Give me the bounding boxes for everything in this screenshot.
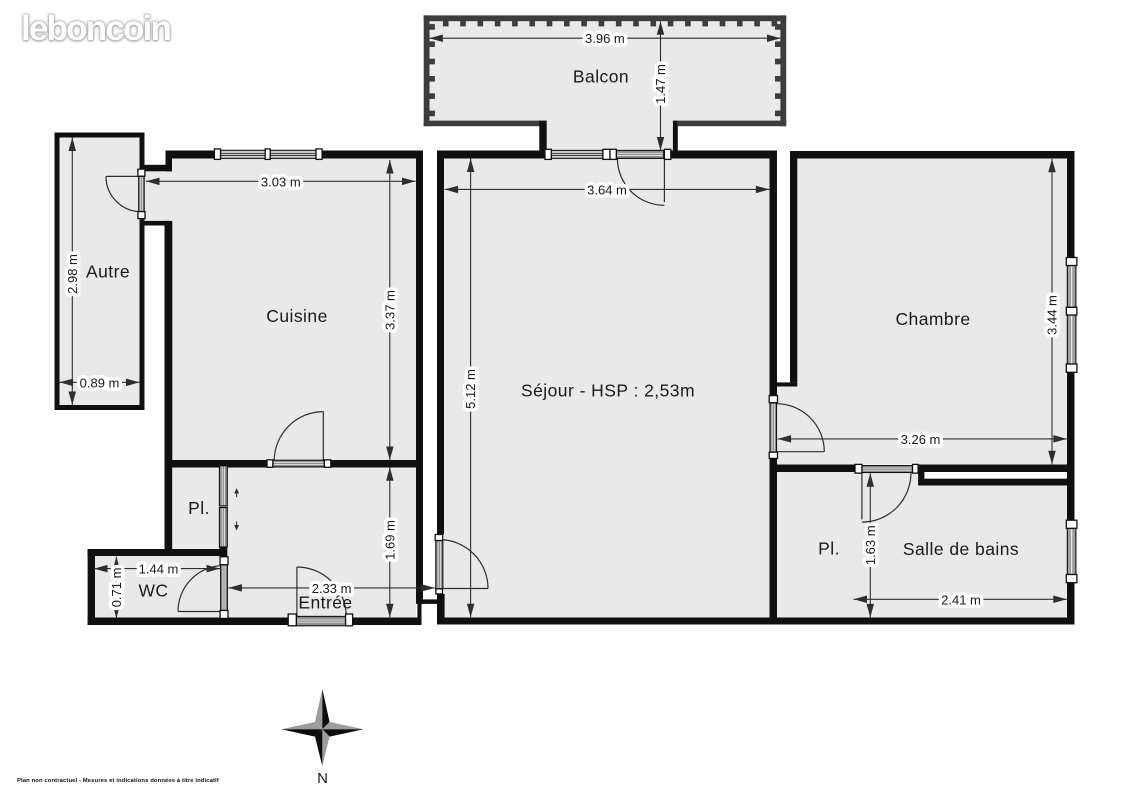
svg-text:1.47 m: 1.47 m: [653, 64, 668, 104]
svg-text:0.89 m: 0.89 m: [80, 375, 120, 390]
svg-text:WC: WC: [138, 581, 168, 601]
svg-text:Balcon: Balcon: [573, 67, 629, 87]
svg-text:N: N: [317, 770, 328, 787]
svg-text:1.69 m: 1.69 m: [382, 520, 397, 560]
svg-text:Cuisine: Cuisine: [266, 306, 328, 326]
svg-text:Pl.: Pl.: [188, 498, 210, 518]
svg-text:2.41 m: 2.41 m: [941, 592, 981, 607]
svg-text:Entrée: Entrée: [298, 593, 352, 613]
svg-text:1.63 m: 1.63 m: [863, 525, 878, 565]
svg-text:Salle de bains: Salle de bains: [903, 539, 1019, 559]
svg-text:Pl.: Pl.: [818, 539, 840, 559]
svg-text:2.98 m: 2.98 m: [65, 254, 80, 294]
svg-text:1.44 m: 1.44 m: [139, 562, 179, 577]
svg-text:3.96 m: 3.96 m: [585, 31, 625, 46]
svg-text:0.71 m: 0.71 m: [109, 568, 124, 608]
svg-text:3.44 m: 3.44 m: [1045, 295, 1060, 335]
svg-text:3.64 m: 3.64 m: [587, 182, 627, 197]
svg-text:Autre: Autre: [86, 262, 130, 282]
svg-text:3.03 m: 3.03 m: [261, 174, 301, 189]
svg-text:3.26 m: 3.26 m: [901, 432, 941, 447]
svg-text:3.37 m: 3.37 m: [382, 290, 397, 330]
svg-text:Séjour - HSP : 2,53m: Séjour - HSP : 2,53m: [521, 381, 695, 401]
svg-text:Chambre: Chambre: [895, 309, 970, 329]
svg-text:5.12 m: 5.12 m: [463, 369, 478, 409]
